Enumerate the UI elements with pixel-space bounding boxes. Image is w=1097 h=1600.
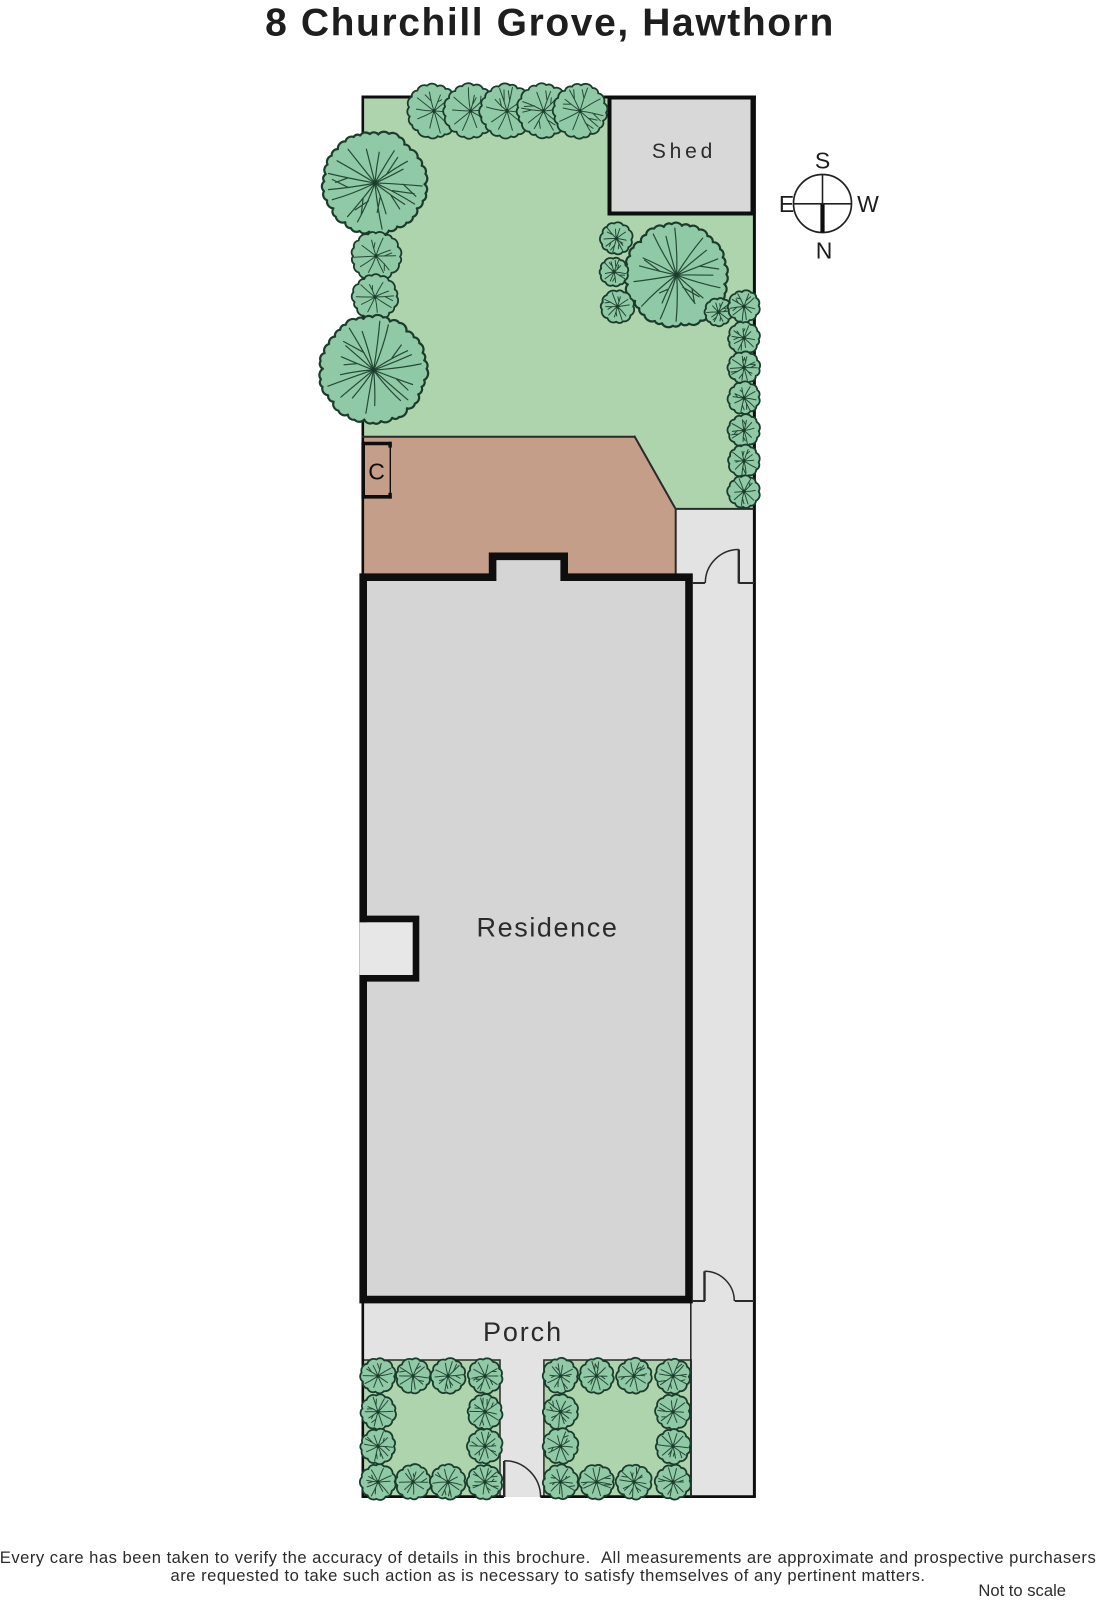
- svg-text:N: N: [816, 238, 833, 264]
- svg-text:Not to scale: Not to scale: [978, 1581, 1066, 1600]
- svg-text:8 Churchill Grove, Hawthorn: 8 Churchill Grove, Hawthorn: [265, 2, 835, 45]
- svg-text:Porch: Porch: [483, 1317, 563, 1347]
- svg-text:Shed: Shed: [652, 140, 716, 163]
- svg-text:Residence: Residence: [477, 913, 619, 943]
- svg-text:W: W: [857, 191, 879, 217]
- svg-text:E: E: [779, 191, 794, 217]
- svg-text:Every care has been taken to v: Every care has been taken to verify the …: [0, 1548, 1096, 1567]
- svg-text:are requested to take such act: are requested to take such action as is …: [170, 1566, 925, 1585]
- svg-text:S: S: [815, 148, 830, 174]
- svg-text:C: C: [368, 459, 385, 485]
